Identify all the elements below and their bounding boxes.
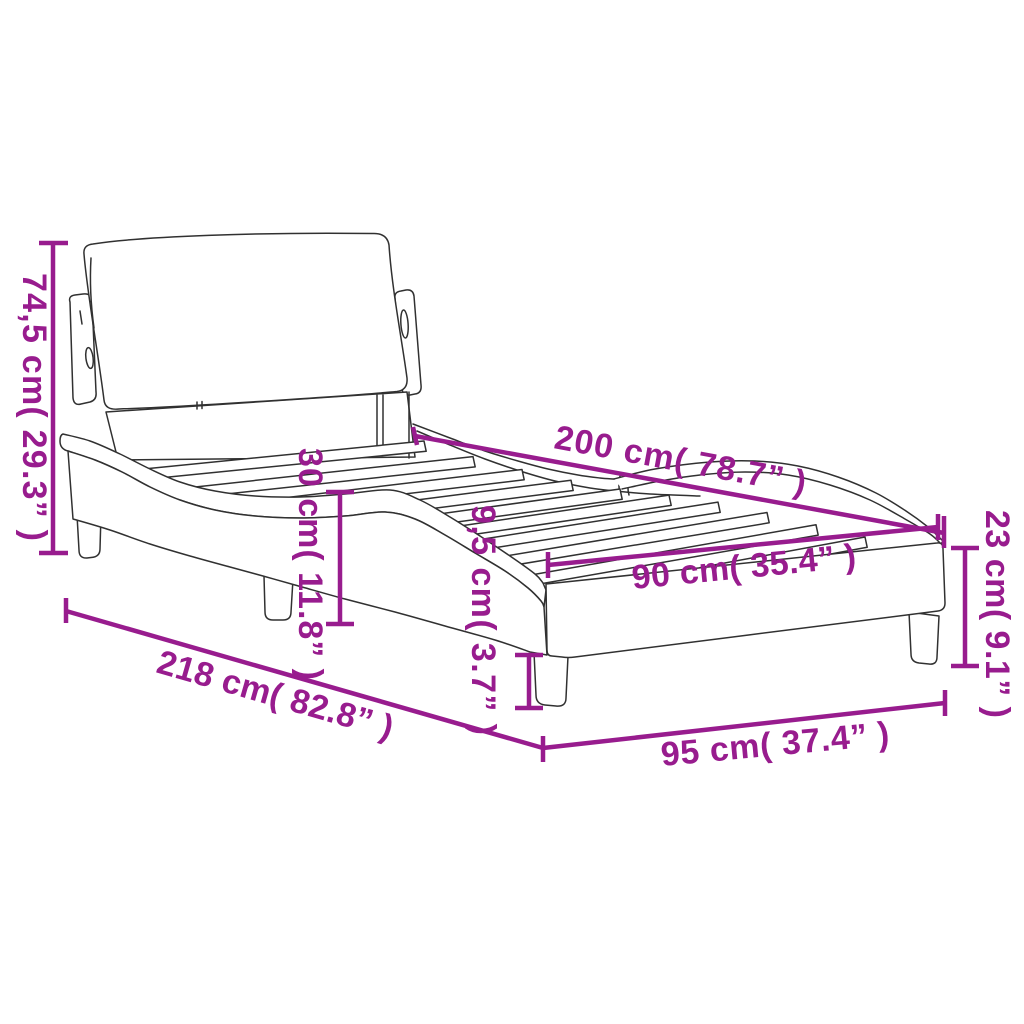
svg-text:74,5 cm( 29.3” ): 74,5 cm( 29.3” ) [15, 273, 53, 541]
svg-text:30 cm( 11.8” ): 30 cm( 11.8” ) [291, 448, 329, 680]
svg-text:23 cm( 9.1” ): 23 cm( 9.1” ) [978, 510, 1016, 718]
svg-text:9,5 cm( 3.7” ): 9,5 cm( 3.7” ) [464, 505, 502, 735]
